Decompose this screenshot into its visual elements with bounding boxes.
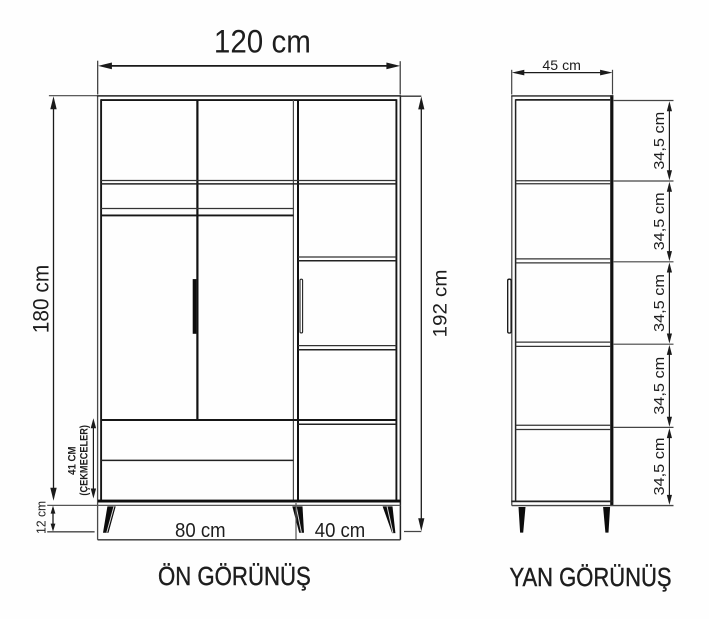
svg-text:45 cm: 45 cm <box>542 57 581 73</box>
svg-text:34,5 cm: 34,5 cm <box>651 357 668 415</box>
svg-text:120 cm: 120 cm <box>214 23 311 59</box>
svg-text:40 cm: 40 cm <box>315 520 366 542</box>
svg-text:34,5 cm: 34,5 cm <box>651 112 668 170</box>
svg-text:41 CM: 41 CM <box>67 447 79 475</box>
svg-text:YAN GÖRÜNÜŞ: YAN GÖRÜNÜŞ <box>510 564 672 592</box>
svg-text:34,5 cm: 34,5 cm <box>651 274 668 332</box>
svg-text:12 cm: 12 cm <box>34 501 49 534</box>
svg-text:80 cm: 80 cm <box>175 520 226 542</box>
svg-text:34,5 cm: 34,5 cm <box>651 192 668 250</box>
svg-text:192 cm: 192 cm <box>429 270 451 338</box>
svg-text:180 cm: 180 cm <box>28 265 53 333</box>
svg-text:ÖN GÖRÜNÜŞ: ÖN GÖRÜNÜŞ <box>158 563 311 591</box>
svg-text:34,5 cm: 34,5 cm <box>651 438 668 496</box>
svg-text:(ÇEKMECELER): (ÇEKMECELER) <box>78 425 90 496</box>
